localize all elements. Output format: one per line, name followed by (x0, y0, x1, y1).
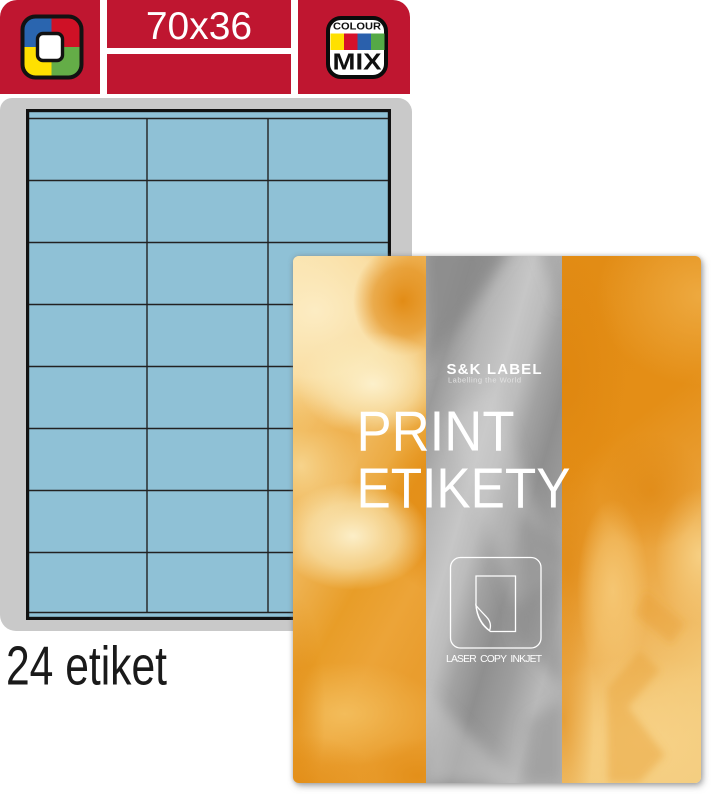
svg-text:ETIKETY: ETIKETY (357, 457, 571, 521)
svg-text:LASER COPY INKJET: LASER COPY INKJET (446, 654, 543, 665)
svg-text:MIX: MIX (333, 49, 383, 75)
svg-text:PRINT: PRINT (357, 400, 515, 464)
svg-text:COLOUR: COLOUR (333, 21, 381, 33)
svg-text:24 etiket: 24 etiket (6, 638, 167, 697)
svg-text:Labelling the World: Labelling the World (448, 376, 521, 385)
